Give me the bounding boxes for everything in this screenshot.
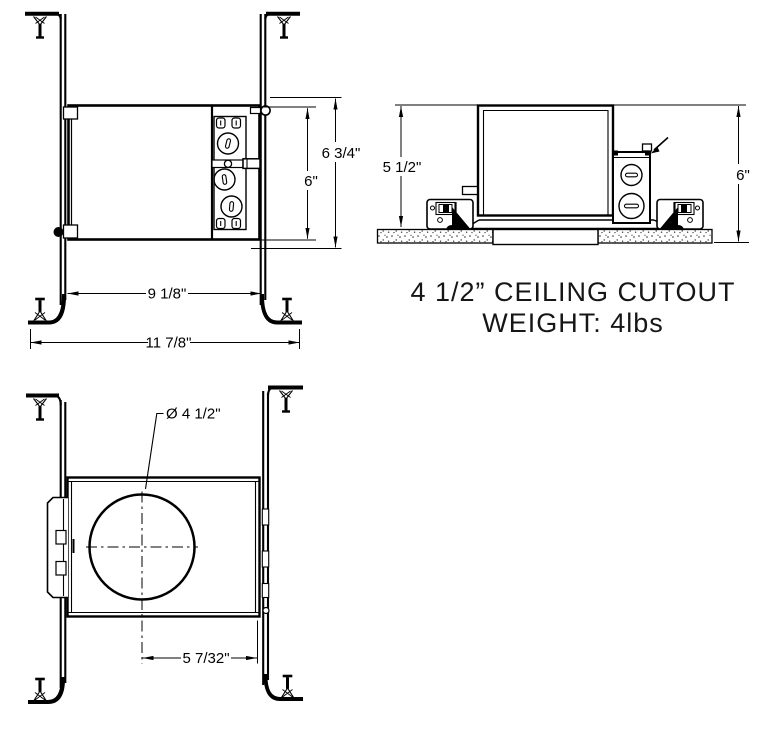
mounting-nail-icon (34, 17, 47, 38)
junction-box-plan (48, 498, 69, 598)
mounting-nail-icon (33, 679, 47, 702)
dim-housing-height-label: 6" (304, 173, 318, 190)
mounting-nail-icon (278, 17, 291, 38)
hanger-bracket-icon (657, 200, 703, 230)
technical-drawing: 6 3/4" 6" 9 1/8" 11 7/8" (0, 0, 758, 739)
hanger-bracket-icon (427, 200, 473, 230)
ceiling-section-right (598, 230, 712, 244)
hanger-bar-left (27, 14, 65, 323)
dim-above-ceiling-label: 5 1/2" (383, 159, 422, 176)
hanger-bar-right (261, 14, 300, 323)
side-view: 5 1/2" 6" 4 1/2” CEILING CUTOUT WEIGHT: … (375, 105, 757, 338)
dim-aperture-diameter-label: Ø 4 1/2" (166, 406, 221, 423)
ceiling-section-left (378, 230, 494, 244)
caption-ceiling-cutout: 4 1/2” CEILING CUTOUT (410, 277, 735, 307)
hanger-foot-bottom-right (262, 296, 300, 323)
mounting-nail-icon (33, 299, 47, 322)
mounting-nail-icon (280, 391, 293, 412)
hanger-bar-right (263, 388, 301, 700)
dim-overall-width-label: 11 7/8" (146, 335, 192, 352)
mounting-nail-icon (280, 299, 294, 322)
bottom-view: Ø 4 1/2" 5 7/32" (28, 388, 301, 703)
mounting-nail-icon (34, 399, 47, 420)
frame-plan (68, 478, 270, 617)
dim-center-to-edge-label: 5 7/32" (182, 650, 229, 667)
clamp-bolt (54, 227, 64, 237)
dim-overall-height-label: 6 3/4" (322, 145, 361, 162)
bottom-view-dimensions: 5 7/32" (143, 621, 258, 668)
dim-side-overall-height-label: 6" (736, 167, 750, 184)
front-view: 6 3/4" 6" 9 1/8" 11 7/8" (27, 14, 365, 352)
spec-sheet-page: 6 3/4" 6" 9 1/8" 11 7/8" (0, 0, 758, 739)
housing-front (54, 106, 271, 240)
caption-weight: WEIGHT: 4lbs (482, 308, 664, 338)
housing-side (463, 106, 614, 216)
latch (243, 159, 260, 169)
dim-housing-width-label: 9 1/8" (148, 286, 187, 303)
mounting-nail-icon (281, 676, 295, 699)
trim-flange (493, 230, 598, 245)
